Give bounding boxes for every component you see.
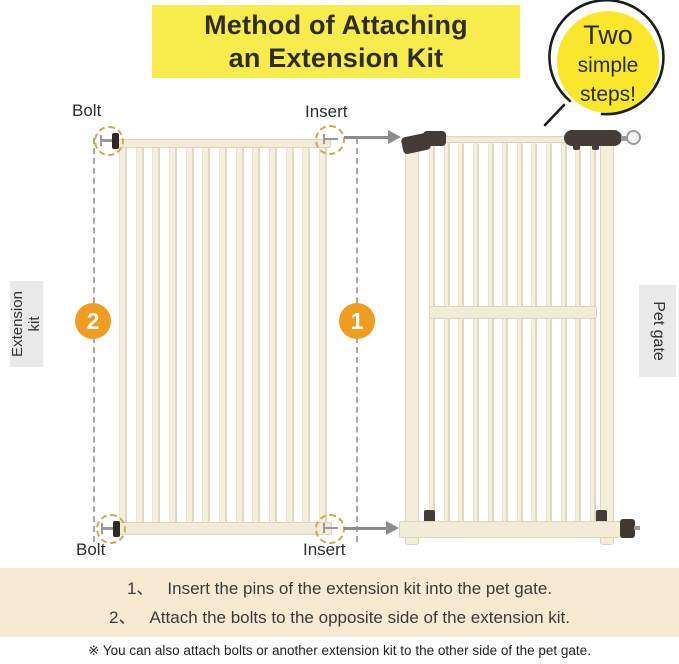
instruction-sheet: Method of Attaching an Extension Kit Two… (0, 0, 679, 664)
extension-kit-side-label-text: Extension kit (9, 279, 45, 369)
gate-bar (169, 146, 177, 524)
pet-gate-bars (429, 143, 596, 523)
pet-gate-left-post (405, 138, 419, 545)
two-steps-badge-label: Two simple steps! (556, 14, 660, 114)
gate-bar (429, 143, 435, 523)
gate-bar (302, 146, 310, 524)
instruction-step-1-text: Insert the pins of the extension kit int… (167, 575, 552, 602)
instruction-step-2-number: 2、 (109, 604, 135, 631)
insert-bottom-label: Insert (303, 540, 346, 560)
gate-bar (186, 146, 194, 524)
step-2-marker: 2 (75, 303, 111, 339)
gate-bracket-icon (423, 131, 446, 146)
badge-line3: steps! (580, 80, 636, 109)
pet-gate-side-label-text: Pet gate (648, 285, 668, 377)
extension-kit-bottom-rail (113, 522, 332, 535)
page-title-line1: Method of Attaching (204, 9, 468, 42)
pet-gate-bottom-rail (399, 521, 632, 538)
highlight-circle-bolt-top (94, 126, 124, 156)
extension-kit-side-label: Extension kit (10, 281, 43, 367)
gate-knob-icon (626, 130, 641, 145)
gate-bar (561, 143, 567, 523)
arrow-right-icon (344, 527, 387, 530)
extension-kit-top-rail (114, 139, 331, 148)
instruction-step-1: 1、 Insert the pins of the extension kit … (127, 575, 552, 602)
guide-dashed-line-left (93, 138, 95, 542)
instructions-panel: 1、 Insert the pins of the extension kit … (0, 568, 679, 637)
page-title-line2: an Extension Kit (229, 42, 444, 75)
highlight-circle-insert-top (315, 125, 345, 155)
page-title: Method of Attaching an Extension Kit (152, 5, 520, 78)
gate-bar (219, 146, 227, 524)
gate-bottom-knob-icon (634, 526, 640, 530)
gate-bar (458, 143, 464, 523)
gate-bar (546, 143, 552, 523)
bolt-top-label: Bolt (72, 101, 101, 121)
arrow-right-icon (386, 521, 399, 535)
gate-bar (517, 143, 523, 523)
gate-bar (502, 143, 508, 523)
instruction-step-2-text: Attach the bolts to the opposite side of… (149, 604, 570, 631)
gate-bar (531, 143, 537, 523)
arrow-right-icon (388, 130, 401, 144)
gate-bar (152, 146, 160, 524)
step-1-marker: 1 (339, 303, 375, 339)
footnote: ※ You can also attach bolts or another e… (0, 643, 679, 659)
gate-bar (269, 146, 277, 524)
gate-latch-icon (592, 144, 599, 150)
gate-bar (444, 143, 450, 523)
gate-bar (575, 143, 581, 523)
badge-line2: simple (578, 51, 639, 80)
pet-gate-right-post (600, 138, 614, 545)
gate-bar (236, 146, 244, 524)
pet-gate-mid-rail (429, 306, 597, 319)
extension-kit-label-line2: kit (26, 279, 43, 369)
badge-line1: Two (583, 19, 633, 51)
gate-bar (473, 143, 479, 523)
gate-bottom-knob-icon (620, 519, 635, 538)
extension-kit-bars (119, 146, 327, 524)
gate-bar (119, 146, 127, 524)
guide-dashed-line-right (356, 138, 358, 542)
gate-latch-icon (573, 144, 580, 150)
extension-kit-label-line1: Extension (9, 279, 26, 369)
gate-bar (286, 146, 294, 524)
instruction-step-1-number: 1、 (127, 575, 153, 602)
arrow-right-icon (344, 136, 389, 139)
insert-top-label: Insert (305, 102, 348, 122)
gate-bar (319, 146, 327, 524)
instruction-step-2: 2、 Attach the bolts to the opposite side… (109, 604, 570, 631)
gate-bar (252, 146, 260, 524)
gate-bar (202, 146, 210, 524)
gate-bar (136, 146, 144, 524)
bolt-bottom-label: Bolt (76, 540, 105, 560)
gate-bar (590, 143, 596, 523)
gate-bar (488, 143, 494, 523)
pet-gate-side-label: Pet gate (639, 285, 676, 377)
